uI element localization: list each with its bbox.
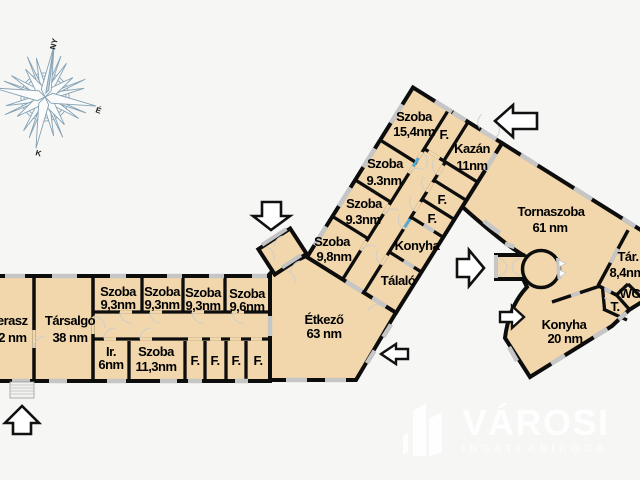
svg-text:9,3nm: 9,3nm <box>144 297 179 312</box>
svg-text:Étkező: Étkező <box>305 312 344 327</box>
svg-text:F.: F. <box>437 192 446 207</box>
svg-text:T.: T. <box>610 299 619 314</box>
svg-text:Konyha: Konyha <box>395 238 441 253</box>
svg-text:6nm: 6nm <box>98 357 123 372</box>
svg-text:F.: F. <box>427 211 436 226</box>
svg-text:9,3nm: 9,3nm <box>185 298 220 313</box>
svg-text:F.: F. <box>231 353 240 368</box>
svg-text:Társalgó: Társalgó <box>45 313 96 328</box>
svg-text:Szoba: Szoba <box>346 196 383 211</box>
svg-text:Szoba: Szoba <box>367 156 404 171</box>
svg-text:F.: F. <box>439 127 448 142</box>
svg-text:9.3nm: 9.3nm <box>366 173 401 188</box>
svg-text:63 nm: 63 nm <box>306 326 341 341</box>
svg-text:Szoba: Szoba <box>396 109 433 124</box>
svg-text:Szoba: Szoba <box>314 234 351 249</box>
svg-text:F.: F. <box>253 353 262 368</box>
svg-text:15,4nm: 15,4nm <box>393 124 435 139</box>
svg-text:Kazán: Kazán <box>454 141 490 156</box>
svg-text:9,3nm: 9,3nm <box>100 297 135 312</box>
svg-text:INGATLANIRODA: INGATLANIRODA <box>462 443 608 455</box>
svg-text:Konyha: Konyha <box>542 317 588 332</box>
svg-text:VÁROSI: VÁROSI <box>462 402 609 443</box>
svg-text:11nm: 11nm <box>456 158 487 173</box>
svg-text:20 nm: 20 nm <box>547 331 582 346</box>
svg-text:Tornaszoba: Tornaszoba <box>518 204 586 219</box>
svg-text:F.: F. <box>210 353 219 368</box>
svg-text:F.: F. <box>190 353 199 368</box>
svg-text:9.3nm: 9.3nm <box>345 212 380 227</box>
svg-text:61 nm: 61 nm <box>532 220 567 235</box>
svg-text:9,6nm: 9,6nm <box>229 299 264 314</box>
svg-text:Tálaló: Tálaló <box>381 273 416 288</box>
svg-text:11,3nm: 11,3nm <box>135 359 176 374</box>
svg-text:9,8nm: 9,8nm <box>316 249 351 264</box>
svg-text:Terasz: Terasz <box>0 313 29 328</box>
svg-text:38 nm: 38 nm <box>52 330 87 345</box>
svg-text:WC: WC <box>620 286 640 301</box>
svg-text:Szoba: Szoba <box>138 344 175 359</box>
svg-text:Tár.: Tár. <box>617 249 638 264</box>
svg-text:12 nm: 12 nm <box>0 330 27 345</box>
svg-text:8,4nm: 8,4nm <box>609 265 640 280</box>
